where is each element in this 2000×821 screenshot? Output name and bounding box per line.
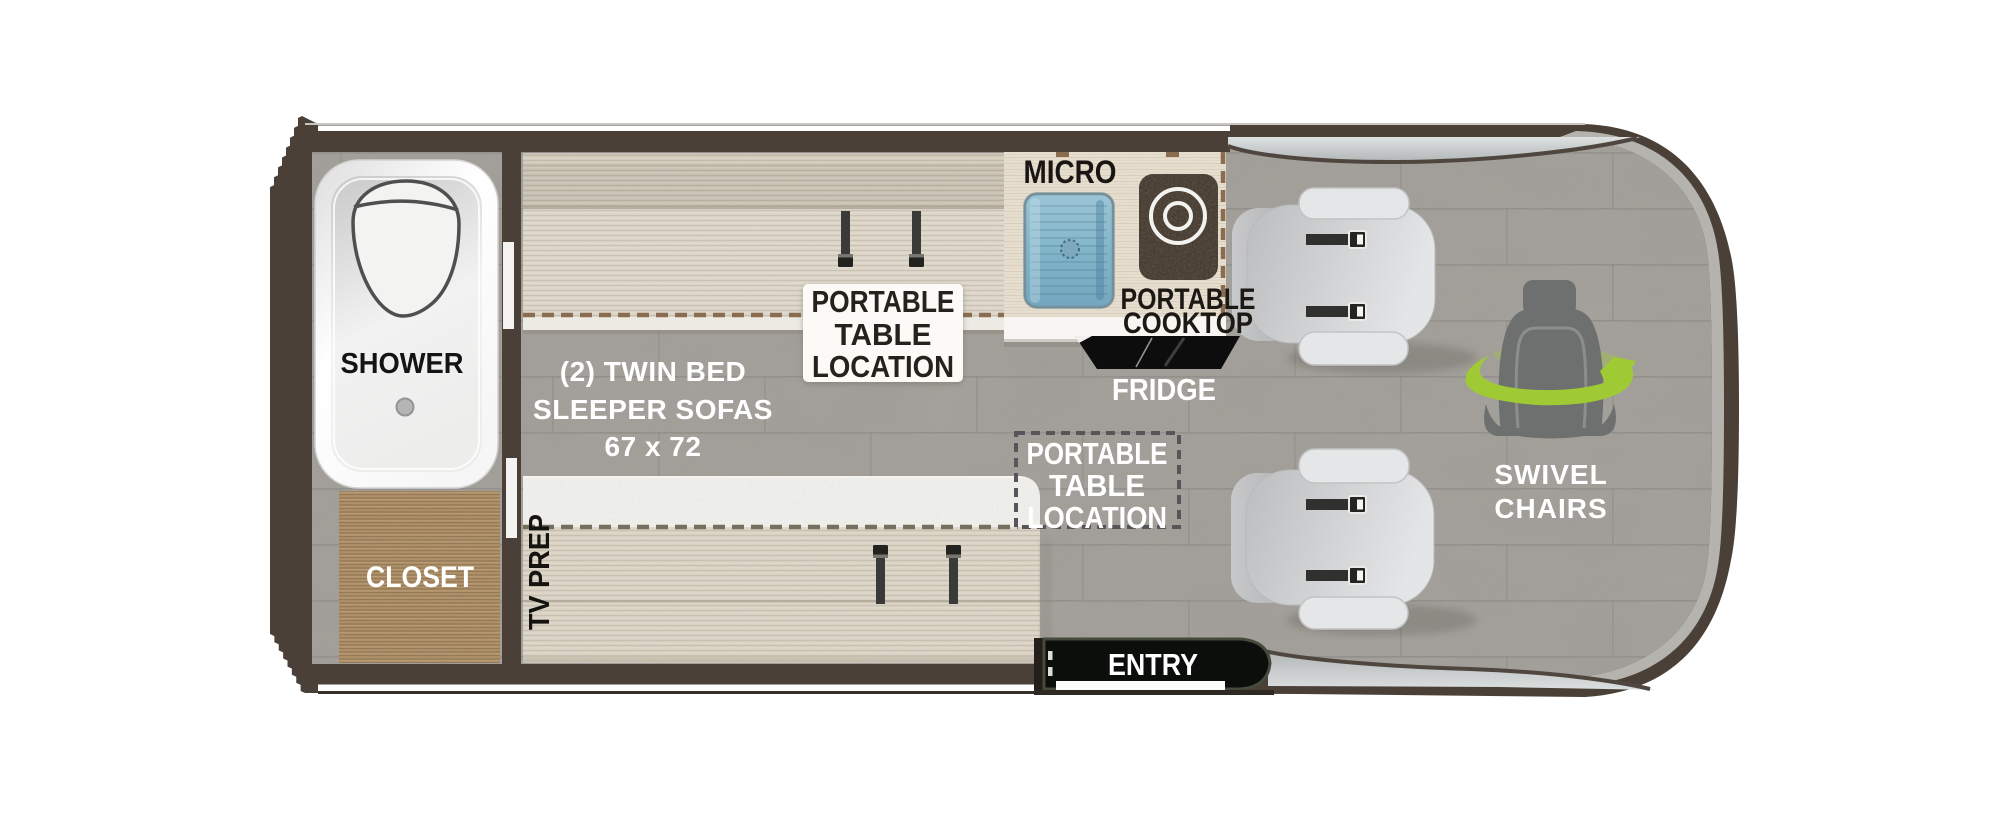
svg-text:SWIVEL: SWIVEL <box>1494 459 1607 490</box>
svg-text:FRIDGE: FRIDGE <box>1112 372 1216 407</box>
svg-text:LOCATION: LOCATION <box>1027 500 1167 535</box>
svg-text:LOCATION: LOCATION <box>812 349 954 384</box>
svg-text:MICRO: MICRO <box>1024 154 1117 190</box>
svg-text:67 x 72: 67 x 72 <box>605 431 702 462</box>
svg-text:PORTABLE: PORTABLE <box>1027 436 1168 471</box>
svg-text:(2) TWIN BED: (2) TWIN BED <box>560 356 746 387</box>
svg-text:PORTABLE: PORTABLE <box>812 284 955 319</box>
svg-text:TV PREP: TV PREP <box>524 514 556 630</box>
svg-text:TABLE: TABLE <box>1049 468 1145 503</box>
svg-text:COOKTOP: COOKTOP <box>1123 307 1253 340</box>
svg-text:CHAIRS: CHAIRS <box>1494 493 1607 524</box>
svg-text:CLOSET: CLOSET <box>366 561 474 594</box>
svg-text:TABLE: TABLE <box>835 317 932 352</box>
svg-text:SHOWER: SHOWER <box>341 348 464 380</box>
svg-text:ENTRY: ENTRY <box>1108 647 1198 682</box>
svg-text:SLEEPER SOFAS: SLEEPER SOFAS <box>533 394 773 425</box>
